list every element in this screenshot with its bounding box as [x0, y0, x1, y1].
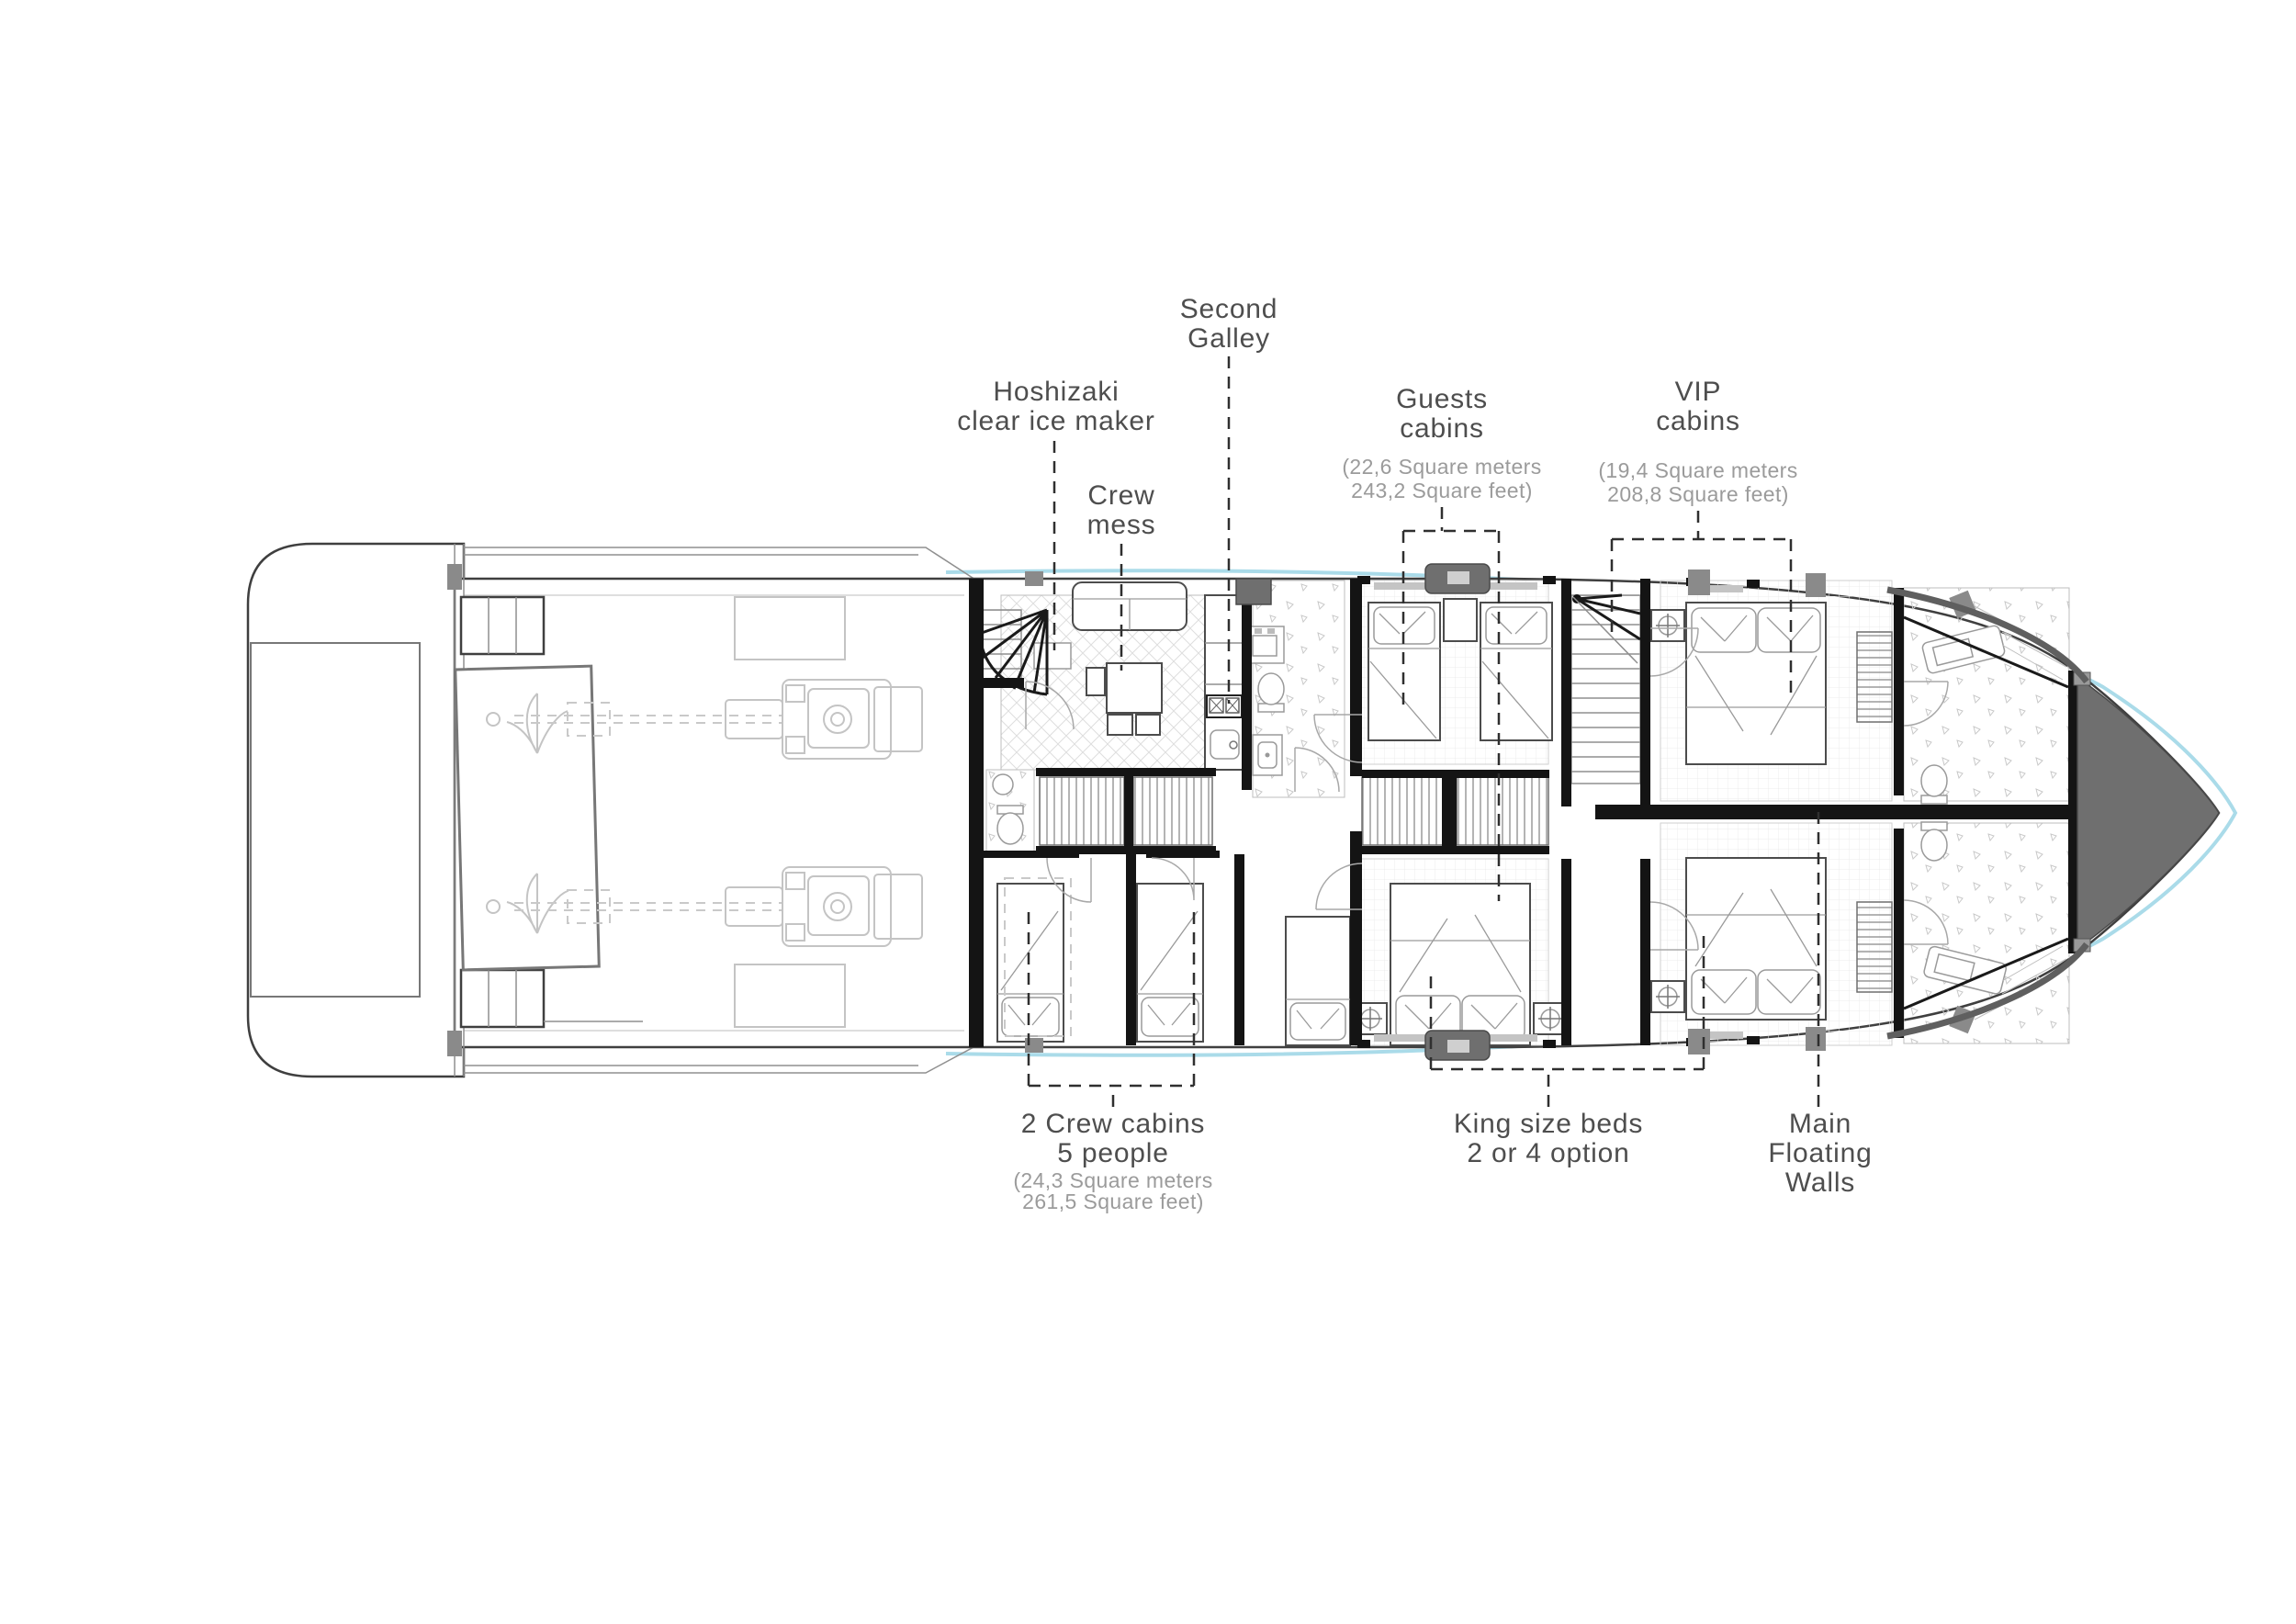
- crew-bed: [1286, 917, 1350, 1045]
- main-floating-walls-label: Main: [1789, 1109, 1851, 1139]
- galley-vanity: [1247, 626, 1284, 663]
- guest-wardrobes: [1362, 770, 1549, 854]
- main-floating-wall: [1595, 805, 2077, 819]
- guests-cabins-label: cabins: [1400, 413, 1484, 444]
- cleat-icon: [1425, 1031, 1490, 1060]
- main-floating-walls-label: Walls: [1785, 1167, 1855, 1198]
- crew-wardrobes: [1036, 768, 1216, 854]
- stern-swim-platform: [248, 544, 464, 1077]
- sink-icon: [1210, 730, 1239, 759]
- second-galley-label: Galley: [1187, 323, 1270, 354]
- vip-cabins-label: VIP: [1675, 377, 1722, 407]
- vip-cabins-size: (19,4 Square meters: [1598, 458, 1797, 482]
- king-beds-label: 2 or 4 option: [1467, 1138, 1629, 1168]
- vip-cabins-size: 208,8 Square feet): [1607, 482, 1789, 506]
- main-floating-walls-label: Floating: [1768, 1138, 1872, 1168]
- tender-garage: [456, 666, 610, 970]
- stove-icon: [1207, 695, 1242, 717]
- guests-cabins-label: Guests: [1396, 384, 1488, 414]
- crew-cabins-label: 2 Crew cabins: [1021, 1109, 1205, 1139]
- crew-mess-label: mess: [1087, 510, 1156, 540]
- guests-cabins-size: 243,2 Square feet): [1351, 479, 1533, 502]
- crew-cabins-size: 261,5 Square feet): [1022, 1190, 1204, 1213]
- guest-stairs: [1571, 594, 1640, 784]
- hoshizaki-label: Hoshizaki: [993, 377, 1119, 407]
- crew-cabins-label: 5 people: [1057, 1138, 1169, 1168]
- crew-mess-label: Crew: [1087, 480, 1154, 511]
- sofa: [1073, 582, 1187, 630]
- vip-cabins-label: cabins: [1656, 406, 1740, 436]
- floor-plan-page: Second Galley Hoshizaki clear ice maker …: [0, 0, 2296, 1624]
- cleat-icon: [1425, 564, 1490, 593]
- yacht-floor-plan: Second Galley Hoshizaki clear ice maker …: [0, 0, 2296, 1624]
- hoshizaki-label: clear ice maker: [957, 406, 1154, 436]
- guests-cabins-size: (22,6 Square meters: [1342, 455, 1541, 479]
- second-galley-label: Second: [1180, 294, 1278, 324]
- king-beds-label: King size beds: [1454, 1109, 1643, 1139]
